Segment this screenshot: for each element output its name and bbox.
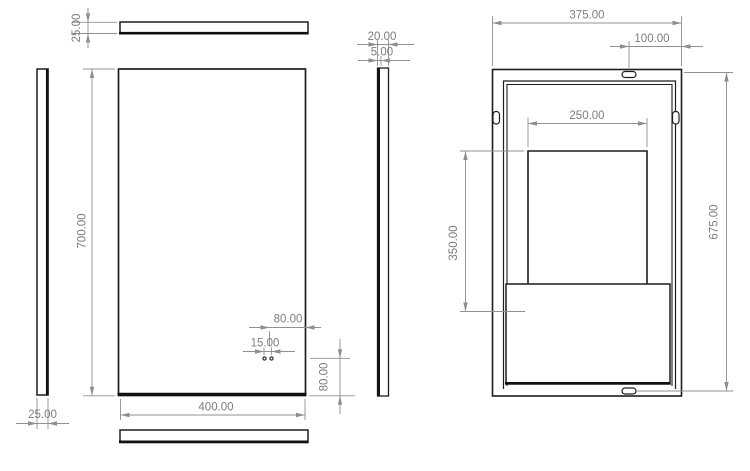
dim-label-front-height: 700.00: [77, 213, 89, 248]
dim-arrow: [369, 58, 378, 62]
dim-front-width: 400.00: [121, 399, 306, 420]
dim-label-slot-to-edge: 100.00: [634, 33, 669, 45]
dim-label-opening-width: 250.00: [569, 110, 604, 122]
dim-arrow: [48, 421, 57, 425]
dim-arrow: [463, 303, 467, 312]
dim-arrow: [90, 387, 94, 396]
dim-arrow: [338, 349, 342, 358]
dim-sheet-thickness: 5.00: [358, 47, 410, 67]
dim-arrow: [381, 58, 390, 62]
dim-label-front-width: 400.00: [198, 402, 233, 414]
dim-arrow: [28, 421, 37, 425]
dim-label-hole-to-bottom: 80.00: [319, 363, 331, 392]
dim-arrow: [338, 396, 342, 405]
dim-label-sheet-thickness: 5.00: [371, 47, 393, 59]
dim-hole-to-bottom: 80.00: [309, 339, 355, 414]
dim-label-top-thickness: 25.00: [71, 14, 83, 43]
front-view: 700.00 400.00 80.00 15.00: [77, 69, 356, 420]
dim-arrow: [121, 413, 130, 417]
cad-drawing-canvas: 25.00 25.00 700.00: [0, 0, 750, 471]
dim-label-hole-to-edge: 80.00: [274, 314, 303, 326]
slot-right: [673, 112, 680, 125]
dim-front-height: 700.00: [77, 69, 116, 396]
dim-top-bar-thickness: 25.00: [71, 8, 117, 48]
dim-left-bar-thickness: 25.00: [16, 398, 69, 429]
dim-arrow: [620, 44, 629, 48]
dim-label-left-thickness: 25.00: [28, 409, 57, 421]
dim-label-hole-spacing: 15.00: [251, 338, 280, 350]
dim-arrow: [86, 34, 90, 43]
top-bar-view: 25.00: [71, 8, 309, 48]
dim-arrow: [673, 21, 682, 25]
dim-arrow: [296, 413, 305, 417]
dim-arrow: [90, 69, 94, 78]
back-view: 375.00 100.00 250.00 350.00: [448, 10, 733, 397]
cad-drawing-page: 25.00 25.00 700.00: [0, 0, 750, 471]
bottom-bar-view: [119, 430, 309, 443]
dim-arrow: [493, 21, 502, 25]
slot-bottom: [622, 388, 636, 394]
slot-top: [622, 72, 636, 78]
dim-label-opening-depth: 350.00: [448, 225, 460, 260]
slot-left: [493, 112, 500, 125]
dim-label-side-depth: 20.00: [368, 31, 397, 43]
dim-arrow: [86, 13, 90, 22]
dim-arrow: [306, 325, 315, 329]
dim-slot-to-edge: 100.00: [610, 33, 703, 68]
back-lower-panel-outline: [506, 284, 670, 384]
dim-arrow: [724, 73, 728, 82]
dim-arrow: [463, 151, 467, 160]
dim-label-back-width: 375.00: [569, 10, 604, 22]
left-bar-view: 25.00: [16, 69, 69, 430]
dim-arrow: [724, 382, 728, 391]
side-view: 20.00 5.00: [357, 31, 414, 396]
top-bar-outline: [120, 22, 308, 34]
dim-label-slot-span: 675.00: [709, 204, 721, 239]
dim-arrow: [682, 44, 691, 48]
